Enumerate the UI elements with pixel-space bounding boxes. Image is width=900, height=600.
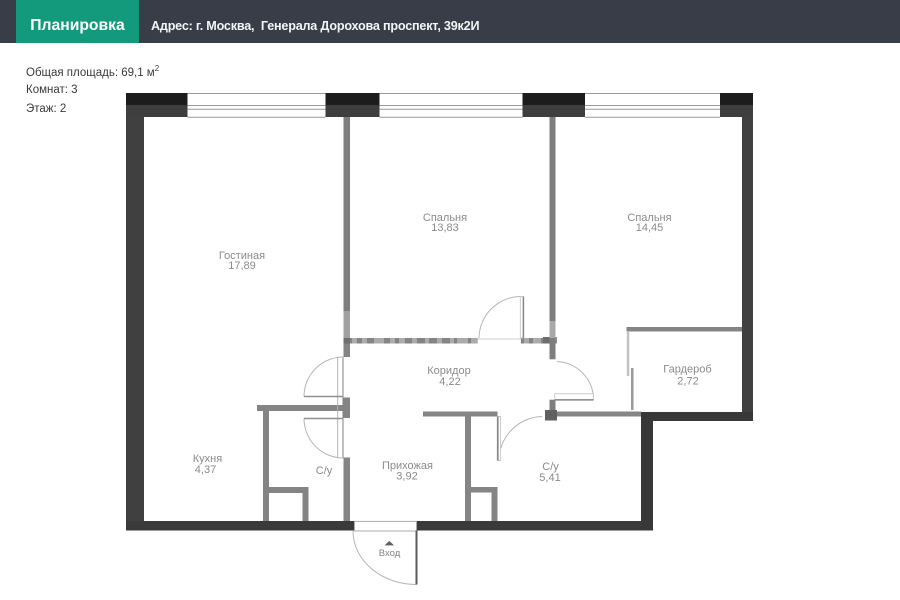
svg-text:4,22: 4,22 [439, 376, 460, 388]
svg-text:13,83: 13,83 [431, 222, 459, 234]
svg-text:3,92: 3,92 [396, 470, 417, 482]
svg-text:14,45: 14,45 [636, 222, 664, 234]
svg-text:5,41: 5,41 [539, 472, 560, 484]
svg-text:Гардероб: Гардероб [663, 363, 711, 375]
svg-text:С/у: С/у [316, 465, 333, 477]
svg-text:2,72: 2,72 [677, 375, 698, 387]
svg-text:17,89: 17,89 [228, 260, 256, 272]
svg-text:Вход: Вход [379, 548, 401, 559]
svg-text:4,37: 4,37 [195, 464, 216, 476]
